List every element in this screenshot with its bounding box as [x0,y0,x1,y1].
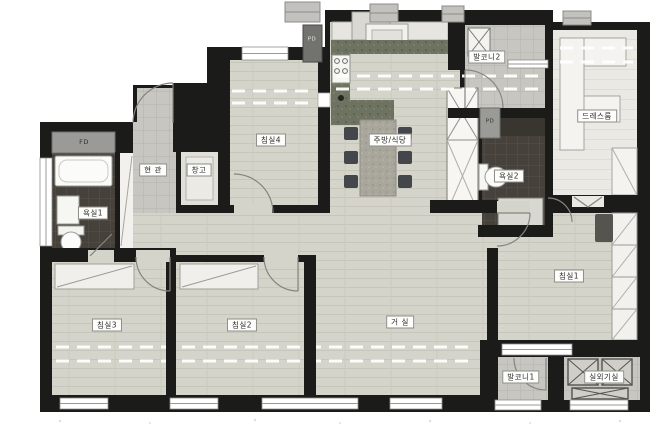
dining-table [360,120,396,196]
counter-top [331,40,448,54]
room-label-balcony1: 발코니1 [502,371,539,384]
room-label-outdoor-unit: 실외기실 [584,371,624,384]
room-label-bathroom2: 욕실2 [494,170,524,183]
pd-bath-shaft-label: PD [486,119,495,125]
ground-speckles [59,419,621,424]
room-label-storage: 창고 [187,164,212,177]
pd-shaft-top [303,25,322,62]
room-label-bedroom4: 침실4 [256,134,286,147]
room-label-dressroom: 드레스룸 [577,110,617,123]
bath2-vanity [500,116,545,136]
pd-top-shaft-label: PD [308,37,317,43]
room-label-balcony2: 발코니2 [468,51,505,64]
bedroom1-chair [595,214,613,242]
room-label-bedroom2: 침실2 [227,319,257,332]
room-label-bedroom1: 침실1 [554,270,584,283]
room-label-bedroom3: 침실3 [92,319,122,332]
floorplan-page: 현 관 창고 욕실1 침실4 주방/식당 발코니2 드레스룸 욕실2 침실3 침… [0,0,670,428]
fd-shaft-label: FD [79,139,89,146]
room-label-kitchen-dining: 주방/식당 [369,134,412,147]
bath1-sink [57,196,79,224]
stove [332,55,350,83]
room-label-bathroom1: 욕실1 [78,207,108,220]
room-label-living: 거 실 [386,316,414,329]
room-label-entrance: 현 관 [139,164,167,177]
